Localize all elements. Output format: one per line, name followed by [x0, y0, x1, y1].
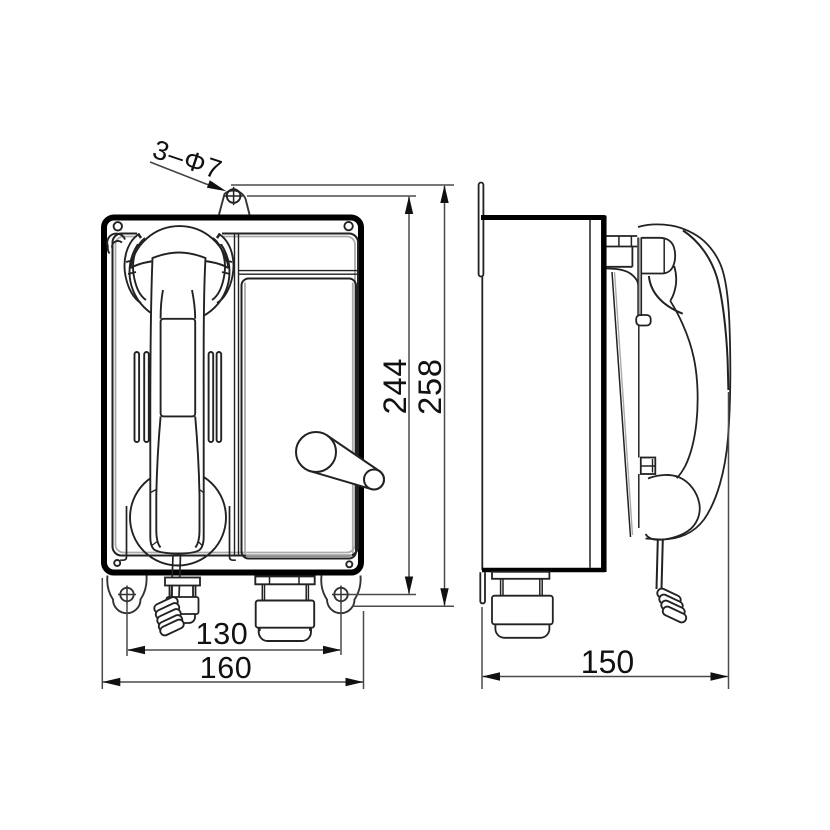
svg-text:150: 150 [581, 644, 634, 680]
svg-text:244: 244 [377, 358, 413, 415]
svg-text:160: 160 [200, 651, 253, 685]
svg-text:130: 130 [196, 617, 249, 651]
svg-text:258: 258 [412, 358, 448, 415]
